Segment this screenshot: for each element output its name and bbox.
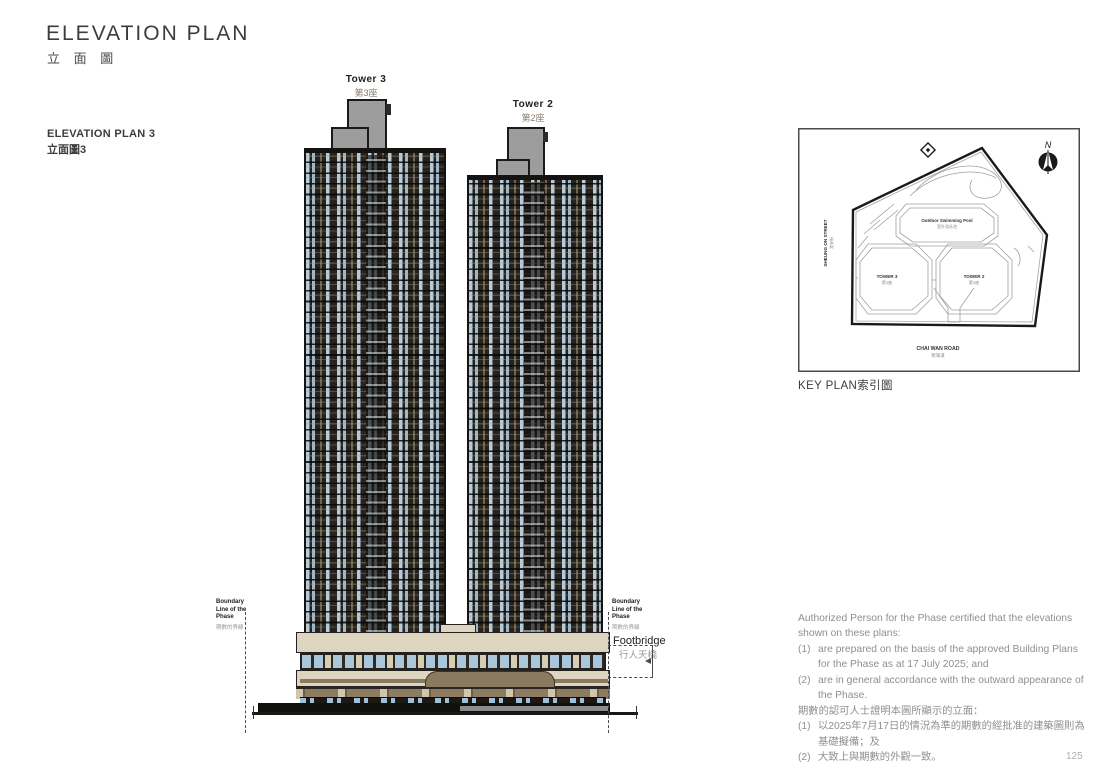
keyplan-tower2-label-zh: 第2座 [969, 279, 979, 285]
notes-item-en-2: (2) are in general accordance with the o… [798, 673, 1092, 704]
notes-item-zh-1: (1) 以2025年7月17日的情況為準的期數的經批准的建築圖則為基礎擬備；及 [798, 719, 1092, 750]
boundary-line-right [608, 612, 609, 733]
page-title: ELEVATION PLAN [46, 22, 249, 46]
footbridge-dim-bottom [608, 677, 653, 678]
ground-grey-segment [460, 706, 608, 711]
svg-text:N: N [1045, 140, 1052, 150]
keyplan-street-west-label: SHEUNG ON STREET [823, 219, 828, 266]
footbridge-dim-top [608, 645, 653, 646]
keyplan-tower2-label: TOWER 2 [964, 274, 985, 279]
notes-item-zh-2: (2) 大致上與期數的外觀一致。 [798, 750, 1092, 765]
notes-intro-en: Authorized Person for the Phase certifie… [798, 611, 1092, 642]
notes-item-en-1: (1) are prepared on the basis of the app… [798, 642, 1092, 673]
tower2-lift-core [524, 182, 544, 632]
podium-canopy-curve [425, 671, 555, 687]
keyplan-road-south-label-zh: 柴灣道 [931, 352, 945, 359]
keyplan-street-west-label-zh: 常安街 [828, 237, 834, 249]
ground-tick-right [636, 706, 637, 719]
keyplan-pool-label: Outdoor Swimming Pool [921, 218, 972, 223]
tower3-label: Tower 3 第3座 [326, 74, 406, 99]
keyplan-tower3-label-zh: 第3座 [882, 279, 892, 285]
certification-notes: Authorized Person for the Phase certifie… [798, 611, 1092, 765]
elevation-plan-label: ELEVATION PLAN 3 [47, 128, 155, 140]
footbridge-dim-arrow [645, 658, 651, 664]
tower2-label: Tower 2 第2座 [493, 99, 573, 124]
tower3-lift-core [366, 155, 386, 632]
elevation-plan-label-zh: 立面圖3 [47, 141, 86, 157]
page-title-zh: 立 面 圖 [47, 48, 118, 67]
brochure-page: ELEVATION PLAN 立 面 圖 ELEVATION PLAN 3 立面… [0, 0, 1101, 783]
key-plan: N Outdoor Swimming Pool 室外游泳池 TOWER 3 第3… [798, 128, 1080, 372]
ground-tick-left [253, 706, 254, 719]
keyplan-caption: KEY PLAN索引圖 [798, 377, 893, 393]
podium-window-band [300, 653, 606, 670]
keyplan-road-south-label: CHAI WAN ROAD [917, 346, 960, 352]
ground-line [252, 712, 638, 715]
page-number: 125 [1066, 751, 1083, 762]
podium-upper-slab [296, 632, 610, 653]
keyplan-pool-label-zh: 室外游泳池 [937, 223, 957, 229]
tower3-roof-vent [386, 104, 391, 115]
tower2-roof-vent [543, 132, 548, 142]
boundary-label-right: Boundary Line of the Phase 期數的界線 [612, 599, 652, 631]
keyplan-tower3-label: TOWER 3 [877, 274, 898, 279]
key-plan-border [799, 129, 1080, 372]
boundary-label-left: Boundary Line of the Phase 期數的界線 [216, 599, 256, 631]
footbridge-dim-line [652, 645, 653, 678]
footbridge-label: Footbridge 行人天橋 [613, 635, 666, 661]
notes-intro-zh: 期數的認可人士證明本圖所顯示的立面： [798, 704, 1092, 719]
